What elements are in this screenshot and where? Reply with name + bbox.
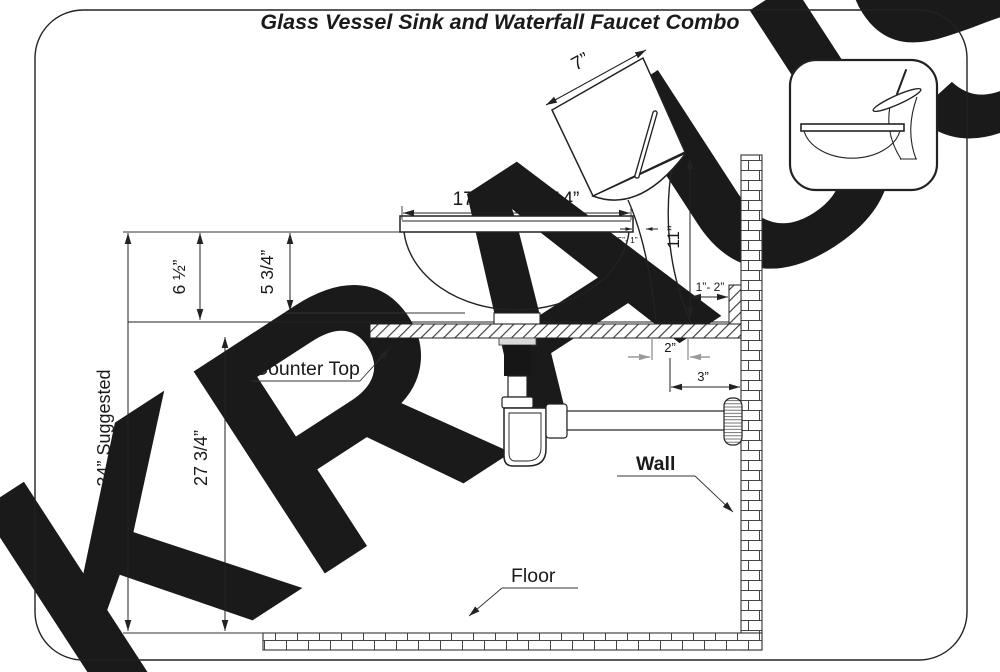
dim-534-text: 5 3/4” bbox=[257, 249, 277, 294]
floor-text: Floor bbox=[511, 565, 556, 587]
drain-flange bbox=[499, 338, 536, 345]
dim-overhang-text: 0.5”- 1” bbox=[610, 235, 638, 245]
label-floor: Floor bbox=[469, 565, 578, 616]
drain-tailpiece bbox=[508, 376, 527, 397]
waste-pipe bbox=[567, 411, 726, 430]
counter-top-text: Counter Top bbox=[254, 358, 360, 380]
dim-17-text: 17” (16.5”) /14” bbox=[453, 189, 580, 210]
dim-3-text: 3” bbox=[697, 369, 709, 384]
dim-2-text: 2” bbox=[664, 340, 676, 355]
wall-leader bbox=[695, 476, 733, 512]
drain-slip-nut bbox=[502, 397, 533, 408]
diagram-svg: KRAUS Glass Vessel Sink and Waterfall Fa… bbox=[0, 0, 1000, 672]
trap-outlet-nut bbox=[546, 404, 567, 438]
drain-threaded-pipe bbox=[504, 345, 531, 376]
p-trap-body bbox=[504, 408, 546, 466]
sink-rim bbox=[400, 216, 633, 232]
wall-section bbox=[741, 155, 762, 650]
inset-thumbnail bbox=[790, 60, 937, 190]
dim-2734-text: 27 3/4” bbox=[191, 430, 211, 486]
counter-hatch-slab bbox=[370, 324, 741, 338]
floor-leader bbox=[469, 588, 502, 616]
sink-mounting-ring bbox=[494, 313, 540, 324]
floor-section bbox=[263, 633, 762, 650]
dim-34-text: 34” Suggested bbox=[94, 369, 114, 486]
wall-flange bbox=[724, 398, 742, 445]
backsplash-edge bbox=[729, 285, 741, 324]
spec-sheet: KRAUS Glass Vessel Sink and Waterfall Fa… bbox=[0, 0, 1000, 672]
dim-11-text: 11” bbox=[664, 225, 683, 249]
inset-rim bbox=[801, 124, 904, 131]
dim-65-text: 6 ½” bbox=[169, 259, 189, 294]
dim-1-2-text: 1”- 2” bbox=[696, 280, 725, 294]
page-title: Glass Vessel Sink and Waterfall Faucet C… bbox=[260, 10, 739, 34]
wall-text: Wall bbox=[636, 453, 675, 475]
label-wall: Wall bbox=[617, 453, 733, 512]
